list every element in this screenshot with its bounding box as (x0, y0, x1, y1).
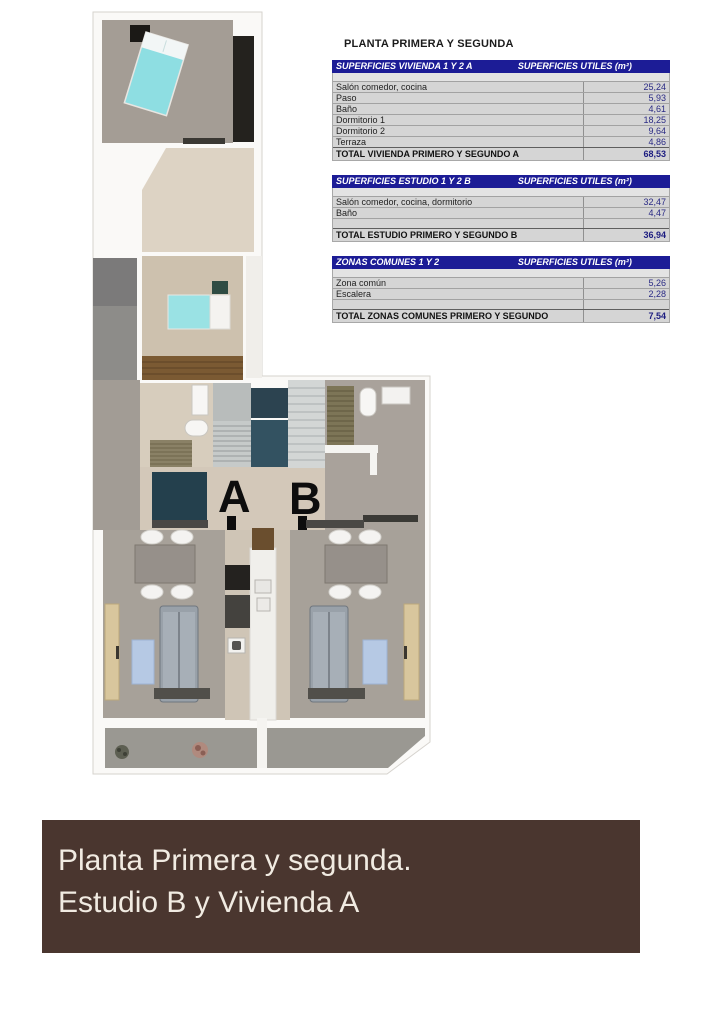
spacer-row (333, 269, 669, 277)
wall-stub (370, 453, 377, 475)
table-total-row: TOTAL ESTUDIO PRIMERO Y SEGUNDO B36,94 (333, 228, 669, 241)
terrace-a (105, 728, 257, 768)
chair (359, 530, 381, 544)
table-estudio-b: SUPERFICIES ESTUDIO 1 Y 2 B SUPERFICIES … (332, 175, 670, 242)
bedside-cabinet (212, 281, 228, 294)
table-row: Dormitorio 29,64 (333, 125, 669, 136)
blank-row (333, 218, 669, 228)
door-lintel (183, 138, 225, 144)
white-room (246, 256, 262, 378)
table-row: Salón comedor, cocina25,24 (333, 81, 669, 92)
window-sill (154, 688, 210, 699)
stairs-a (213, 383, 251, 467)
sink (382, 387, 410, 404)
stair-landing-2 (251, 420, 288, 467)
chair (171, 585, 193, 599)
chair (141, 530, 163, 544)
blank-row (333, 299, 669, 309)
table-header: SUPERFICIES ESTUDIO 1 Y 2 B SUPERFICIES … (332, 175, 670, 188)
banner-line-1: Planta Primera y segunda. (58, 840, 640, 882)
table-header-right: SUPERFICIES UTILES (m²) (518, 175, 632, 188)
spacer-row (333, 73, 669, 81)
bathroom-b (325, 380, 425, 530)
tables-title: PLANTA PRIMERA Y SEGUNDA (344, 38, 670, 50)
table-vivienda-a: SUPERFICIES VIVIENDA 1 Y 2 A SUPERFICIES… (332, 60, 670, 161)
toilet (360, 388, 376, 416)
page: A B (0, 0, 724, 1024)
table-header: SUPERFICIES VIVIENDA 1 Y 2 A SUPERFICIES… (332, 60, 670, 73)
wardrobe (233, 36, 254, 142)
table-header-left: SUPERFICIES VIVIENDA 1 Y 2 A (336, 61, 473, 71)
hallway-upper (142, 148, 254, 252)
chair (329, 585, 351, 599)
plant (115, 745, 129, 759)
radiator (327, 386, 354, 446)
table-zonas-comunes: ZONAS COMUNES 1 Y 2 SUPERFICIES UTILES (… (332, 256, 670, 323)
table-row: Terraza4,86 (333, 136, 669, 147)
chair (141, 585, 163, 599)
kitchen-wood-top (252, 528, 274, 550)
terrace-divider-wall (257, 718, 267, 768)
plant (192, 742, 208, 758)
table-total-row: TOTAL ZONAS COMUNES PRIMERO Y SEGUNDO7,5… (333, 309, 669, 322)
table-row: Zona común5,26 (333, 277, 669, 288)
table-row: Baño4,61 (333, 103, 669, 114)
table-total-row: TOTAL VIVIENDA PRIMERO Y SEGUNDO A68,53 (333, 147, 669, 160)
sofa-a (160, 606, 198, 702)
table-header-right: SUPERFICIES UTILES (m²) (518, 256, 632, 269)
table-header: ZONAS COMUNES 1 Y 2 SUPERFICIES UTILES (… (332, 256, 670, 269)
toilet (185, 420, 208, 436)
table-row: Paso5,93 (333, 92, 669, 103)
chair (171, 530, 193, 544)
balcony-door-a (105, 604, 119, 700)
window-sill (306, 520, 364, 528)
bedroom-1 (102, 20, 254, 144)
table-row: Dormitorio 118,25 (333, 114, 669, 125)
appliance (225, 595, 250, 628)
storage-room (152, 472, 207, 522)
balcony-door-b (404, 604, 419, 700)
control-panel (257, 598, 270, 611)
surface-tables-panel: PLANTA PRIMERA Y SEGUNDA SUPERFICIES VIV… (332, 38, 670, 337)
table-header-left: SUPERFICIES ESTUDIO 1 Y 2 B (336, 176, 471, 186)
sofa-b (310, 606, 348, 702)
banner-line-2: Estudio B y Vivienda A (58, 882, 640, 924)
dining-table (135, 545, 195, 583)
table-row: Escalera2,28 (333, 288, 669, 299)
dining-table (325, 545, 387, 583)
table-row: Salón comedor, cocina, dormitorio32,47 (333, 196, 669, 207)
kitchen-island (225, 565, 250, 590)
stair-landing-1 (251, 388, 288, 418)
table-header-right: SUPERFICIES UTILES (m²) (518, 60, 632, 73)
table-body: Salón comedor, cocina, dormitorio32,47 B… (332, 188, 670, 242)
wood-floor (142, 356, 243, 380)
doormat (363, 515, 418, 522)
rug-b (363, 640, 387, 684)
stairs-b (288, 380, 325, 468)
spacer-row (333, 188, 669, 196)
window-sill (152, 520, 208, 528)
table-row: Baño4,47 (333, 207, 669, 218)
bathroom-a (140, 383, 215, 467)
rug-a (132, 640, 154, 684)
left-corridor (93, 380, 140, 530)
title-banner: Planta Primera y segunda. Estudio B y Vi… (42, 820, 640, 953)
unit-a-label: A (218, 471, 251, 522)
window-sill (308, 688, 365, 699)
radiator (150, 440, 192, 467)
kitchen-counter (250, 548, 276, 720)
table-body: Salón comedor, cocina25,24 Paso5,93 Baño… (332, 73, 670, 161)
table-header-left: ZONAS COMUNES 1 Y 2 (336, 257, 439, 267)
wall-stub (325, 445, 378, 453)
sink (192, 385, 208, 415)
chair (359, 585, 381, 599)
table-body: Zona común5,26 Escalera2,28 TOTAL ZONAS … (332, 269, 670, 323)
cooktop (255, 580, 271, 593)
single-bed (168, 295, 210, 329)
chair (329, 530, 351, 544)
